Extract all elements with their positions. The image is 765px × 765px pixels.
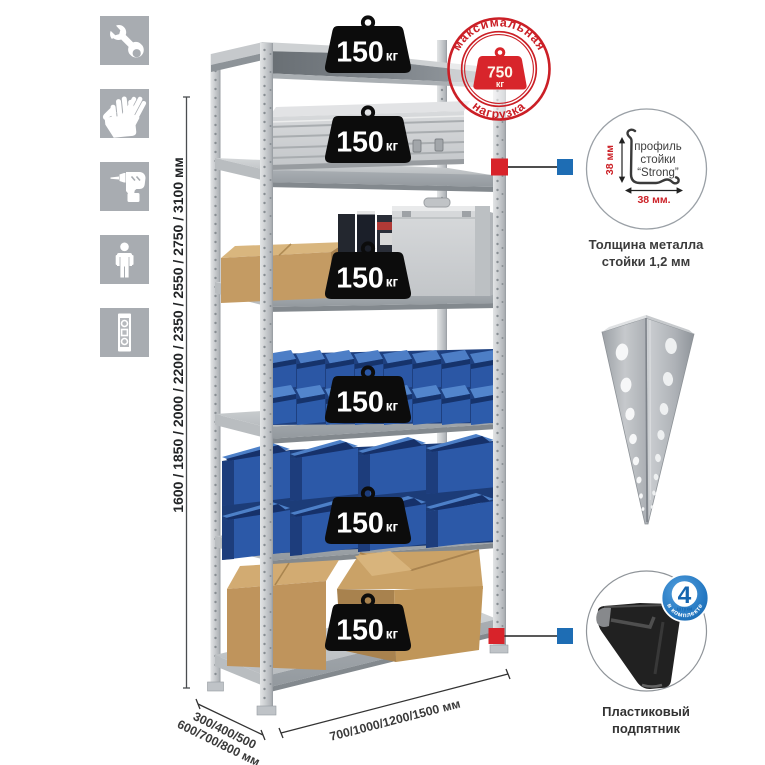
svg-text:стойки 1,2 мм: стойки 1,2 мм bbox=[602, 254, 690, 269]
svg-text:1600 / 1850 / 2000 / 2200 / 23: 1600 / 1850 / 2000 / 2200 / 2350 / 2550 … bbox=[170, 157, 186, 512]
svg-text:38 мм.: 38 мм. bbox=[637, 194, 670, 206]
svg-text:кг: кг bbox=[496, 79, 505, 89]
svg-text:Толщина металла: Толщина металла bbox=[589, 237, 704, 252]
svg-text:Пластиковый: Пластиковый bbox=[602, 704, 690, 719]
svg-text:4: 4 bbox=[678, 582, 692, 609]
svg-text:подпятник: подпятник bbox=[612, 721, 681, 736]
svg-text:стойки: стойки bbox=[640, 154, 675, 166]
svg-text:профиль: профиль bbox=[634, 141, 682, 153]
svg-text:38 мм: 38 мм bbox=[604, 145, 616, 175]
svg-text:“Strong”: “Strong” bbox=[637, 167, 679, 179]
